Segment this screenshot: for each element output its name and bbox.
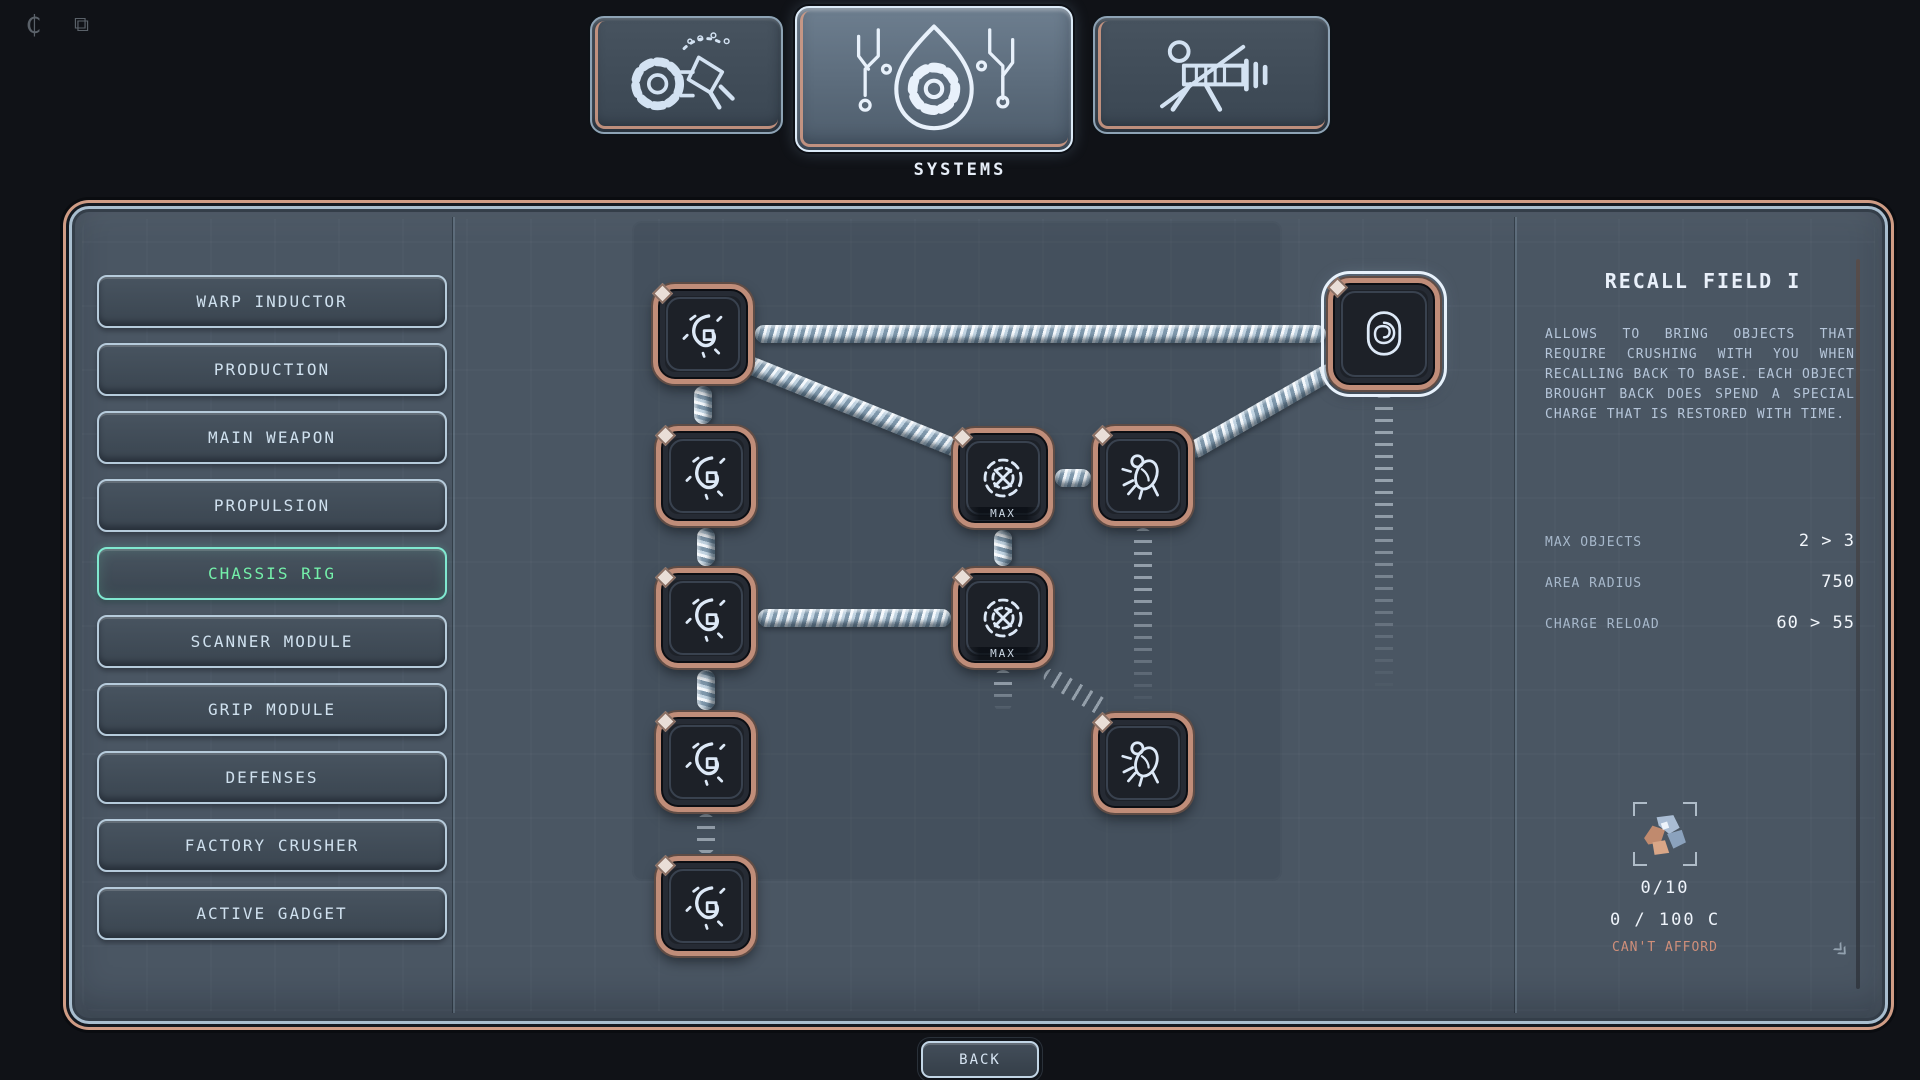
tree-link — [1055, 469, 1091, 487]
tree-link — [694, 386, 712, 424]
stat-value: 60 > 55 — [1776, 613, 1855, 633]
detail-panel: RECALL FIELD I ALLOWS TO BRING OBJECTS T… — [1515, 209, 1891, 1027]
tree-link-locked — [697, 814, 715, 854]
stat-value: 2 > 3 — [1799, 531, 1855, 551]
credits-cost: 0 / 100 C — [1515, 910, 1815, 930]
tree-node-3[interactable] — [656, 568, 756, 668]
sidebar-item-scanner-module[interactable]: SCANNER MODULE — [97, 615, 447, 668]
detail-description: ALLOWS TO BRING OBJECTS THAT REQUIRE CRU… — [1545, 325, 1855, 425]
sidebar-divider — [453, 217, 455, 1013]
tree-node-5[interactable] — [656, 856, 756, 956]
sidebar-item-active-gadget[interactable]: ACTIVE GADGET — [97, 887, 447, 940]
back-button[interactable]: BACK — [921, 1041, 1039, 1078]
systems-panel: » WARP INDUCTOR PRODUCTION MAIN WEAPON P… — [69, 206, 1888, 1024]
sidebar-item-factory-crusher[interactable]: FACTORY CRUSHER — [97, 819, 447, 872]
tree-link-locked — [994, 670, 1012, 712]
expand-icon[interactable]: ⧉ — [74, 12, 89, 37]
ore-resource-icon — [1633, 802, 1697, 866]
sidebar-item-main-weapon[interactable]: MAIN WEAPON — [97, 411, 447, 464]
tree-link — [755, 325, 1326, 343]
bug-icon — [1116, 736, 1170, 790]
tree-node-1[interactable] — [653, 284, 753, 384]
tree-node-7[interactable]: MAX — [953, 568, 1053, 668]
afford-status: CAN'T AFFORD — [1515, 940, 1815, 955]
selected-tab-label: SYSTEMS — [860, 160, 1060, 180]
tree-link-locked — [1134, 528, 1152, 711]
tree-link-locked — [1375, 395, 1393, 695]
category-sidebar: WARP INDUCTOR PRODUCTION MAIN WEAPON PRO… — [97, 275, 447, 955]
rune-icon — [679, 449, 733, 503]
stat-label: MAX OBJECTS — [1545, 535, 1642, 550]
tree-link — [758, 609, 951, 627]
rune-icon — [679, 735, 733, 789]
rune-icon — [679, 591, 733, 645]
max-badge: MAX — [966, 647, 1040, 660]
resource-count: 0/10 — [1515, 878, 1815, 898]
stat-row: AREA RADIUS 750 — [1545, 572, 1855, 613]
tab-fabrication[interactable] — [590, 16, 783, 134]
stat-label: CHARGE RELOAD — [1545, 617, 1660, 632]
stat-value: 750 — [1821, 572, 1855, 592]
stat-label: AREA RADIUS — [1545, 576, 1642, 591]
tree-link — [994, 530, 1012, 566]
sidebar-item-production[interactable]: PRODUCTION — [97, 343, 447, 396]
detail-title: RECALL FIELD I — [1515, 269, 1891, 293]
spiral-icon — [1357, 307, 1411, 361]
credits-icon: ₵ — [26, 10, 41, 39]
drill-arm-icon — [612, 28, 762, 122]
max-badge: MAX — [966, 507, 1040, 520]
rune-icon — [679, 879, 733, 933]
tree-node-9[interactable] — [1093, 713, 1193, 813]
radar-icon — [976, 451, 1030, 505]
tree-node-8[interactable] — [1093, 426, 1193, 526]
tree-node-recall-field[interactable] — [1328, 278, 1440, 390]
sidebar-item-propulsion[interactable]: PROPULSION — [97, 479, 447, 532]
tree-link — [697, 670, 715, 710]
tab-weapons[interactable] — [1093, 16, 1330, 134]
detail-stats: MAX OBJECTS 2 > 3 AREA RADIUS 750 CHARGE… — [1545, 531, 1855, 654]
gear-drop-icon — [834, 20, 1034, 138]
tree-node-6[interactable]: MAX — [953, 428, 1053, 528]
sidebar-item-warp-inductor[interactable]: WARP INDUCTOR — [97, 275, 447, 328]
sidebar-item-chassis-rig[interactable]: CHASSIS RIG — [97, 547, 447, 600]
bug-icon — [1116, 449, 1170, 503]
radar-icon — [976, 591, 1030, 645]
tree-link — [697, 528, 715, 566]
tree-node-4[interactable] — [656, 712, 756, 812]
stat-row: CHARGE RELOAD 60 > 55 — [1545, 613, 1855, 654]
cost-section: 0/10 0 / 100 C CAN'T AFFORD — [1515, 802, 1815, 955]
stat-row: MAX OBJECTS 2 > 3 — [1545, 531, 1855, 572]
rune-icon — [676, 307, 730, 361]
sidebar-item-defenses[interactable]: DEFENSES — [97, 751, 447, 804]
systems-screen: ₵ ⧉ SYSTEMS » WARP INDUCTOR PRODUCTION M… — [0, 0, 1920, 1080]
tree-node-2[interactable] — [656, 426, 756, 526]
sidebar-item-grip-module[interactable]: GRIP MODULE — [97, 683, 447, 736]
raygun-icon — [1122, 25, 1302, 125]
tab-systems[interactable] — [795, 6, 1073, 152]
